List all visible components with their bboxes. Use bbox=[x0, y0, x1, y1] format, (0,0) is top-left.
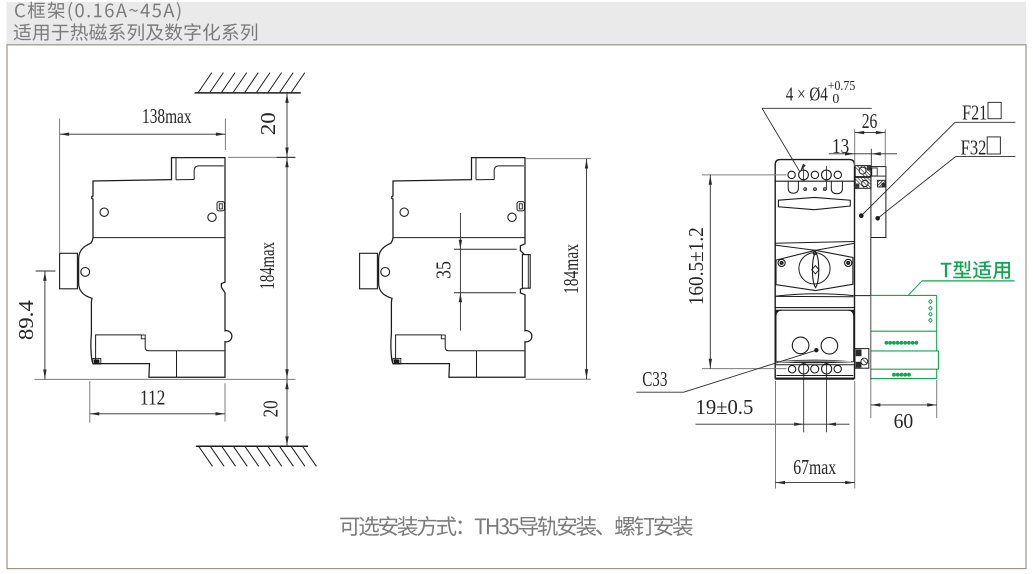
svg-text:20: 20 bbox=[256, 112, 280, 135]
svg-text:F32: F32 bbox=[961, 136, 987, 160]
svg-text:26: 26 bbox=[862, 109, 878, 133]
svg-text:60: 60 bbox=[894, 409, 914, 433]
svg-text:C33: C33 bbox=[642, 367, 667, 391]
svg-text:184max: 184max bbox=[255, 242, 279, 290]
svg-text:13: 13 bbox=[832, 134, 849, 158]
svg-text:35: 35 bbox=[431, 261, 455, 279]
svg-text:184max: 184max bbox=[559, 244, 583, 294]
svg-text:19±0.5: 19±0.5 bbox=[696, 395, 754, 419]
svg-text:89.4: 89.4 bbox=[14, 300, 38, 340]
svg-text:F21: F21 bbox=[962, 100, 987, 124]
svg-text:20: 20 bbox=[258, 400, 282, 417]
svg-text:4 × Ø4: 4 × Ø4 bbox=[786, 83, 828, 105]
svg-text:0: 0 bbox=[832, 91, 839, 106]
svg-text:138max: 138max bbox=[142, 104, 192, 128]
svg-text:112: 112 bbox=[140, 385, 166, 409]
svg-text:67max: 67max bbox=[793, 455, 836, 479]
svg-text:160.5±1.2: 160.5±1.2 bbox=[684, 227, 708, 305]
